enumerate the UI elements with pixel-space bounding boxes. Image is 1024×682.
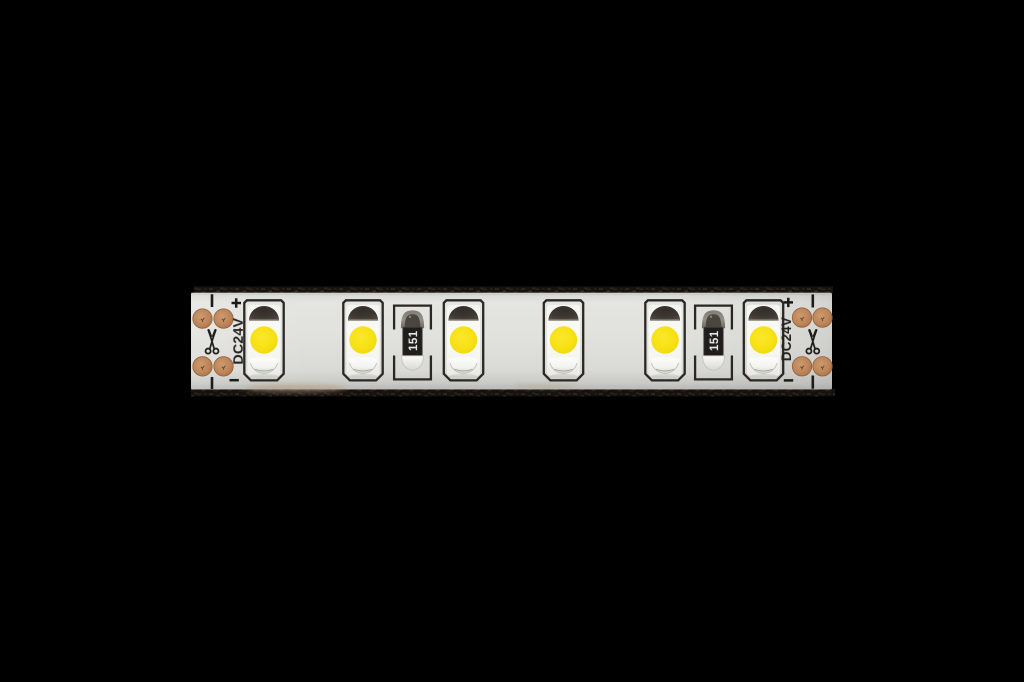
svg-text:151: 151 <box>408 330 420 351</box>
svg-text:DC24V: DC24V <box>779 317 794 361</box>
svg-text:151: 151 <box>709 330 721 351</box>
